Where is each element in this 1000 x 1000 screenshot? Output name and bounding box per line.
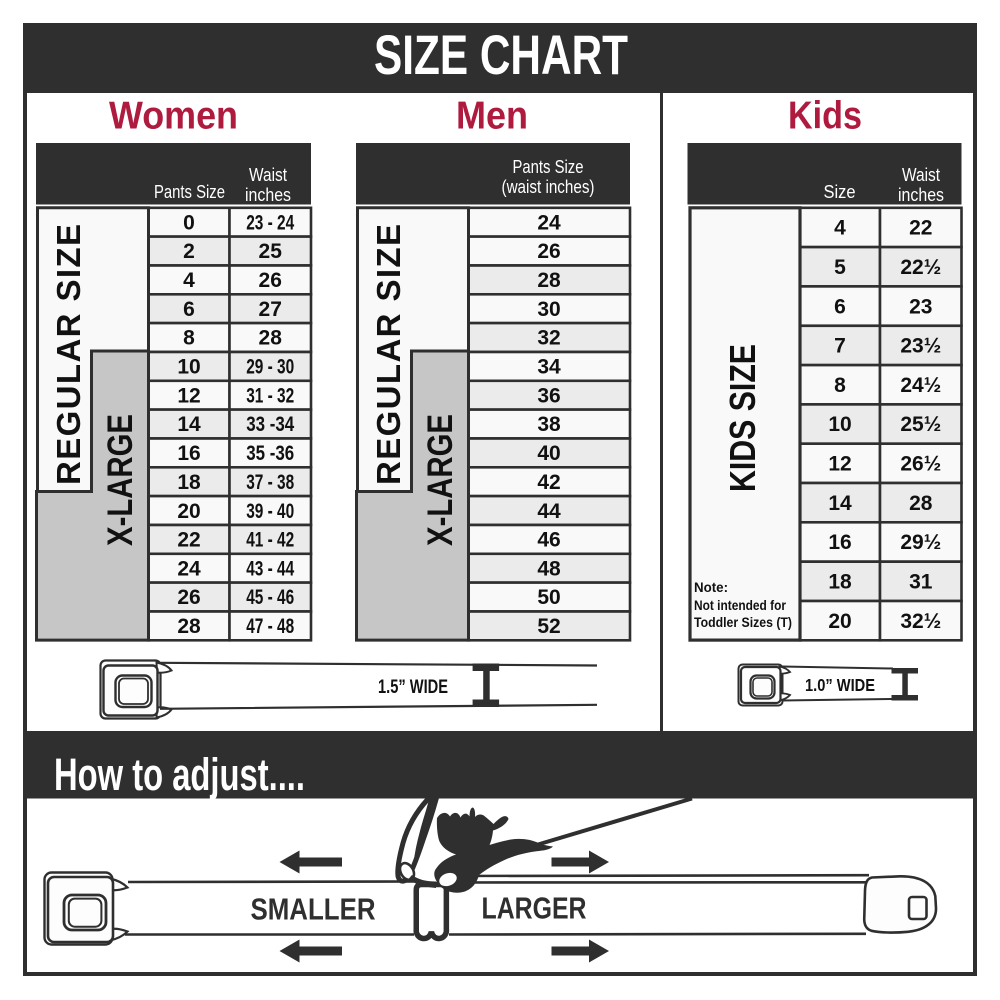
svg-text:12: 12 (828, 453, 851, 476)
svg-text:40: 40 (537, 442, 560, 465)
svg-text:24: 24 (537, 211, 561, 234)
svg-text:25½: 25½ (900, 413, 941, 436)
svg-text:1.0” WIDE: 1.0” WIDE (805, 675, 875, 695)
svg-text:24½: 24½ (900, 374, 941, 397)
svg-text:47 - 48: 47 - 48 (246, 615, 294, 638)
svg-text:10: 10 (177, 356, 200, 379)
svg-text:23 - 24: 23 - 24 (246, 211, 294, 234)
svg-text:KIDS SIZE: KIDS SIZE (722, 344, 763, 492)
svg-text:52: 52 (537, 615, 560, 638)
svg-text:45 - 46: 45 - 46 (246, 586, 294, 609)
svg-text:35 -36: 35 -36 (246, 442, 294, 465)
svg-text:7: 7 (834, 335, 846, 358)
svg-text:22½: 22½ (900, 256, 941, 279)
svg-text:2: 2 (183, 240, 195, 263)
svg-text:26½: 26½ (900, 453, 941, 476)
svg-text:10: 10 (828, 413, 851, 436)
svg-text:38: 38 (537, 413, 561, 436)
svg-text:12: 12 (177, 384, 200, 407)
svg-text:Size: Size (824, 182, 856, 202)
svg-text:6: 6 (834, 295, 846, 318)
svg-text:48: 48 (537, 557, 561, 580)
svg-text:Note:: Note: (694, 580, 728, 595)
svg-text:Waist: Waist (249, 165, 287, 185)
svg-text:28: 28 (909, 492, 933, 515)
svg-text:39 - 40: 39 - 40 (246, 500, 294, 523)
svg-text:4: 4 (183, 269, 195, 292)
svg-text:20: 20 (828, 610, 851, 633)
svg-text:LARGER: LARGER (482, 891, 587, 926)
svg-text:37 - 38: 37 - 38 (246, 471, 294, 494)
svg-text:46: 46 (537, 529, 560, 552)
svg-text:5: 5 (834, 256, 846, 279)
svg-text:50: 50 (537, 586, 560, 609)
svg-text:23½: 23½ (900, 335, 941, 358)
svg-text:32: 32 (537, 327, 560, 350)
svg-text:28: 28 (537, 269, 561, 292)
svg-text:14: 14 (828, 492, 852, 515)
svg-text:20: 20 (177, 500, 200, 523)
svg-text:26: 26 (259, 269, 282, 292)
svg-text:8: 8 (834, 374, 846, 397)
svg-text:SIZE CHART: SIZE CHART (374, 23, 628, 86)
svg-text:31: 31 (909, 571, 933, 594)
svg-text:Waist: Waist (902, 165, 940, 185)
svg-text:44: 44 (537, 500, 561, 523)
svg-text:31 - 32: 31 - 32 (246, 384, 294, 407)
svg-text:16: 16 (828, 531, 851, 554)
svg-text:30: 30 (537, 298, 560, 321)
svg-text:22: 22 (177, 529, 200, 552)
svg-text:26: 26 (537, 240, 560, 263)
svg-text:Kids: Kids (788, 95, 862, 138)
svg-text:28: 28 (259, 327, 283, 350)
svg-text:Women: Women (109, 95, 238, 138)
svg-text:27: 27 (259, 298, 282, 321)
svg-text:6: 6 (183, 298, 195, 321)
svg-text:Pants Size: Pants Size (513, 157, 584, 177)
svg-text:(waist inches): (waist inches) (502, 177, 595, 197)
svg-text:25: 25 (259, 240, 283, 263)
svg-text:Not intended for: Not intended for (694, 598, 787, 613)
svg-text:Toddler Sizes (T): Toddler Sizes (T) (694, 615, 792, 630)
svg-text:inches: inches (898, 185, 944, 205)
svg-text:41 - 42: 41 - 42 (246, 529, 294, 552)
svg-text:Pants Size: Pants Size (154, 182, 225, 202)
svg-text:14: 14 (177, 413, 201, 436)
svg-text:4: 4 (834, 217, 846, 240)
svg-text:28: 28 (177, 615, 201, 638)
svg-text:18: 18 (177, 471, 201, 494)
svg-text:8: 8 (183, 327, 195, 350)
svg-text:18: 18 (828, 571, 852, 594)
svg-text:inches: inches (245, 185, 291, 205)
svg-text:22: 22 (909, 217, 932, 240)
svg-text:34: 34 (537, 356, 561, 379)
svg-text:29 - 30: 29 - 30 (246, 356, 294, 379)
svg-text:33 -34: 33 -34 (246, 413, 294, 436)
svg-text:43 - 44: 43 - 44 (246, 557, 294, 580)
svg-text:X-LARGE: X-LARGE (421, 414, 460, 546)
svg-text:1.5” WIDE: 1.5” WIDE (378, 677, 448, 698)
svg-text:0: 0 (183, 211, 195, 234)
svg-text:42: 42 (537, 471, 560, 494)
svg-text:How to adjust....: How to adjust.... (54, 749, 305, 800)
svg-text:23: 23 (909, 295, 932, 318)
svg-text:24: 24 (177, 557, 201, 580)
svg-text:REGULAR SIZE: REGULAR SIZE (50, 224, 87, 485)
svg-text:REGULAR SIZE: REGULAR SIZE (370, 224, 407, 485)
svg-text:SMALLER: SMALLER (251, 892, 376, 927)
svg-text:X-LARGE: X-LARGE (101, 414, 140, 546)
svg-text:16: 16 (177, 442, 200, 465)
svg-text:36: 36 (537, 384, 560, 407)
svg-text:29½: 29½ (900, 531, 941, 554)
svg-text:Men: Men (456, 95, 528, 138)
svg-text:32½: 32½ (900, 610, 941, 633)
svg-text:26: 26 (177, 586, 200, 609)
